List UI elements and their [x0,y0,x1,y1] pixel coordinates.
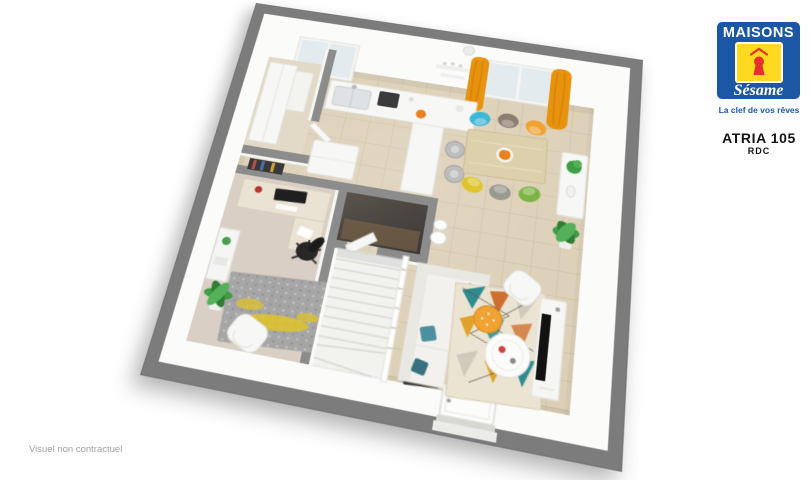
floor-plan-3d-render [140,3,643,472]
keyhole-icon [747,47,771,78]
brand-wordmark-top: MAISONS [723,25,794,41]
model-level: RDC [690,146,811,156]
brand-logo: MAISONS Sésame [717,22,800,99]
pillow [419,325,436,342]
model-title: ATRIA 105 [690,130,811,146]
roof-icon [751,49,767,55]
brand-yellow-square [735,42,783,83]
page: { "brand": { "wordmark_top": "MAISONS", … [0,0,811,480]
sideboard [556,152,588,219]
brand-wordmark-script: Sésame [734,82,784,99]
brand-tagline: La clef de vos rêves [705,105,811,115]
disclaimer-text: Visuel non contractuel [29,444,122,455]
